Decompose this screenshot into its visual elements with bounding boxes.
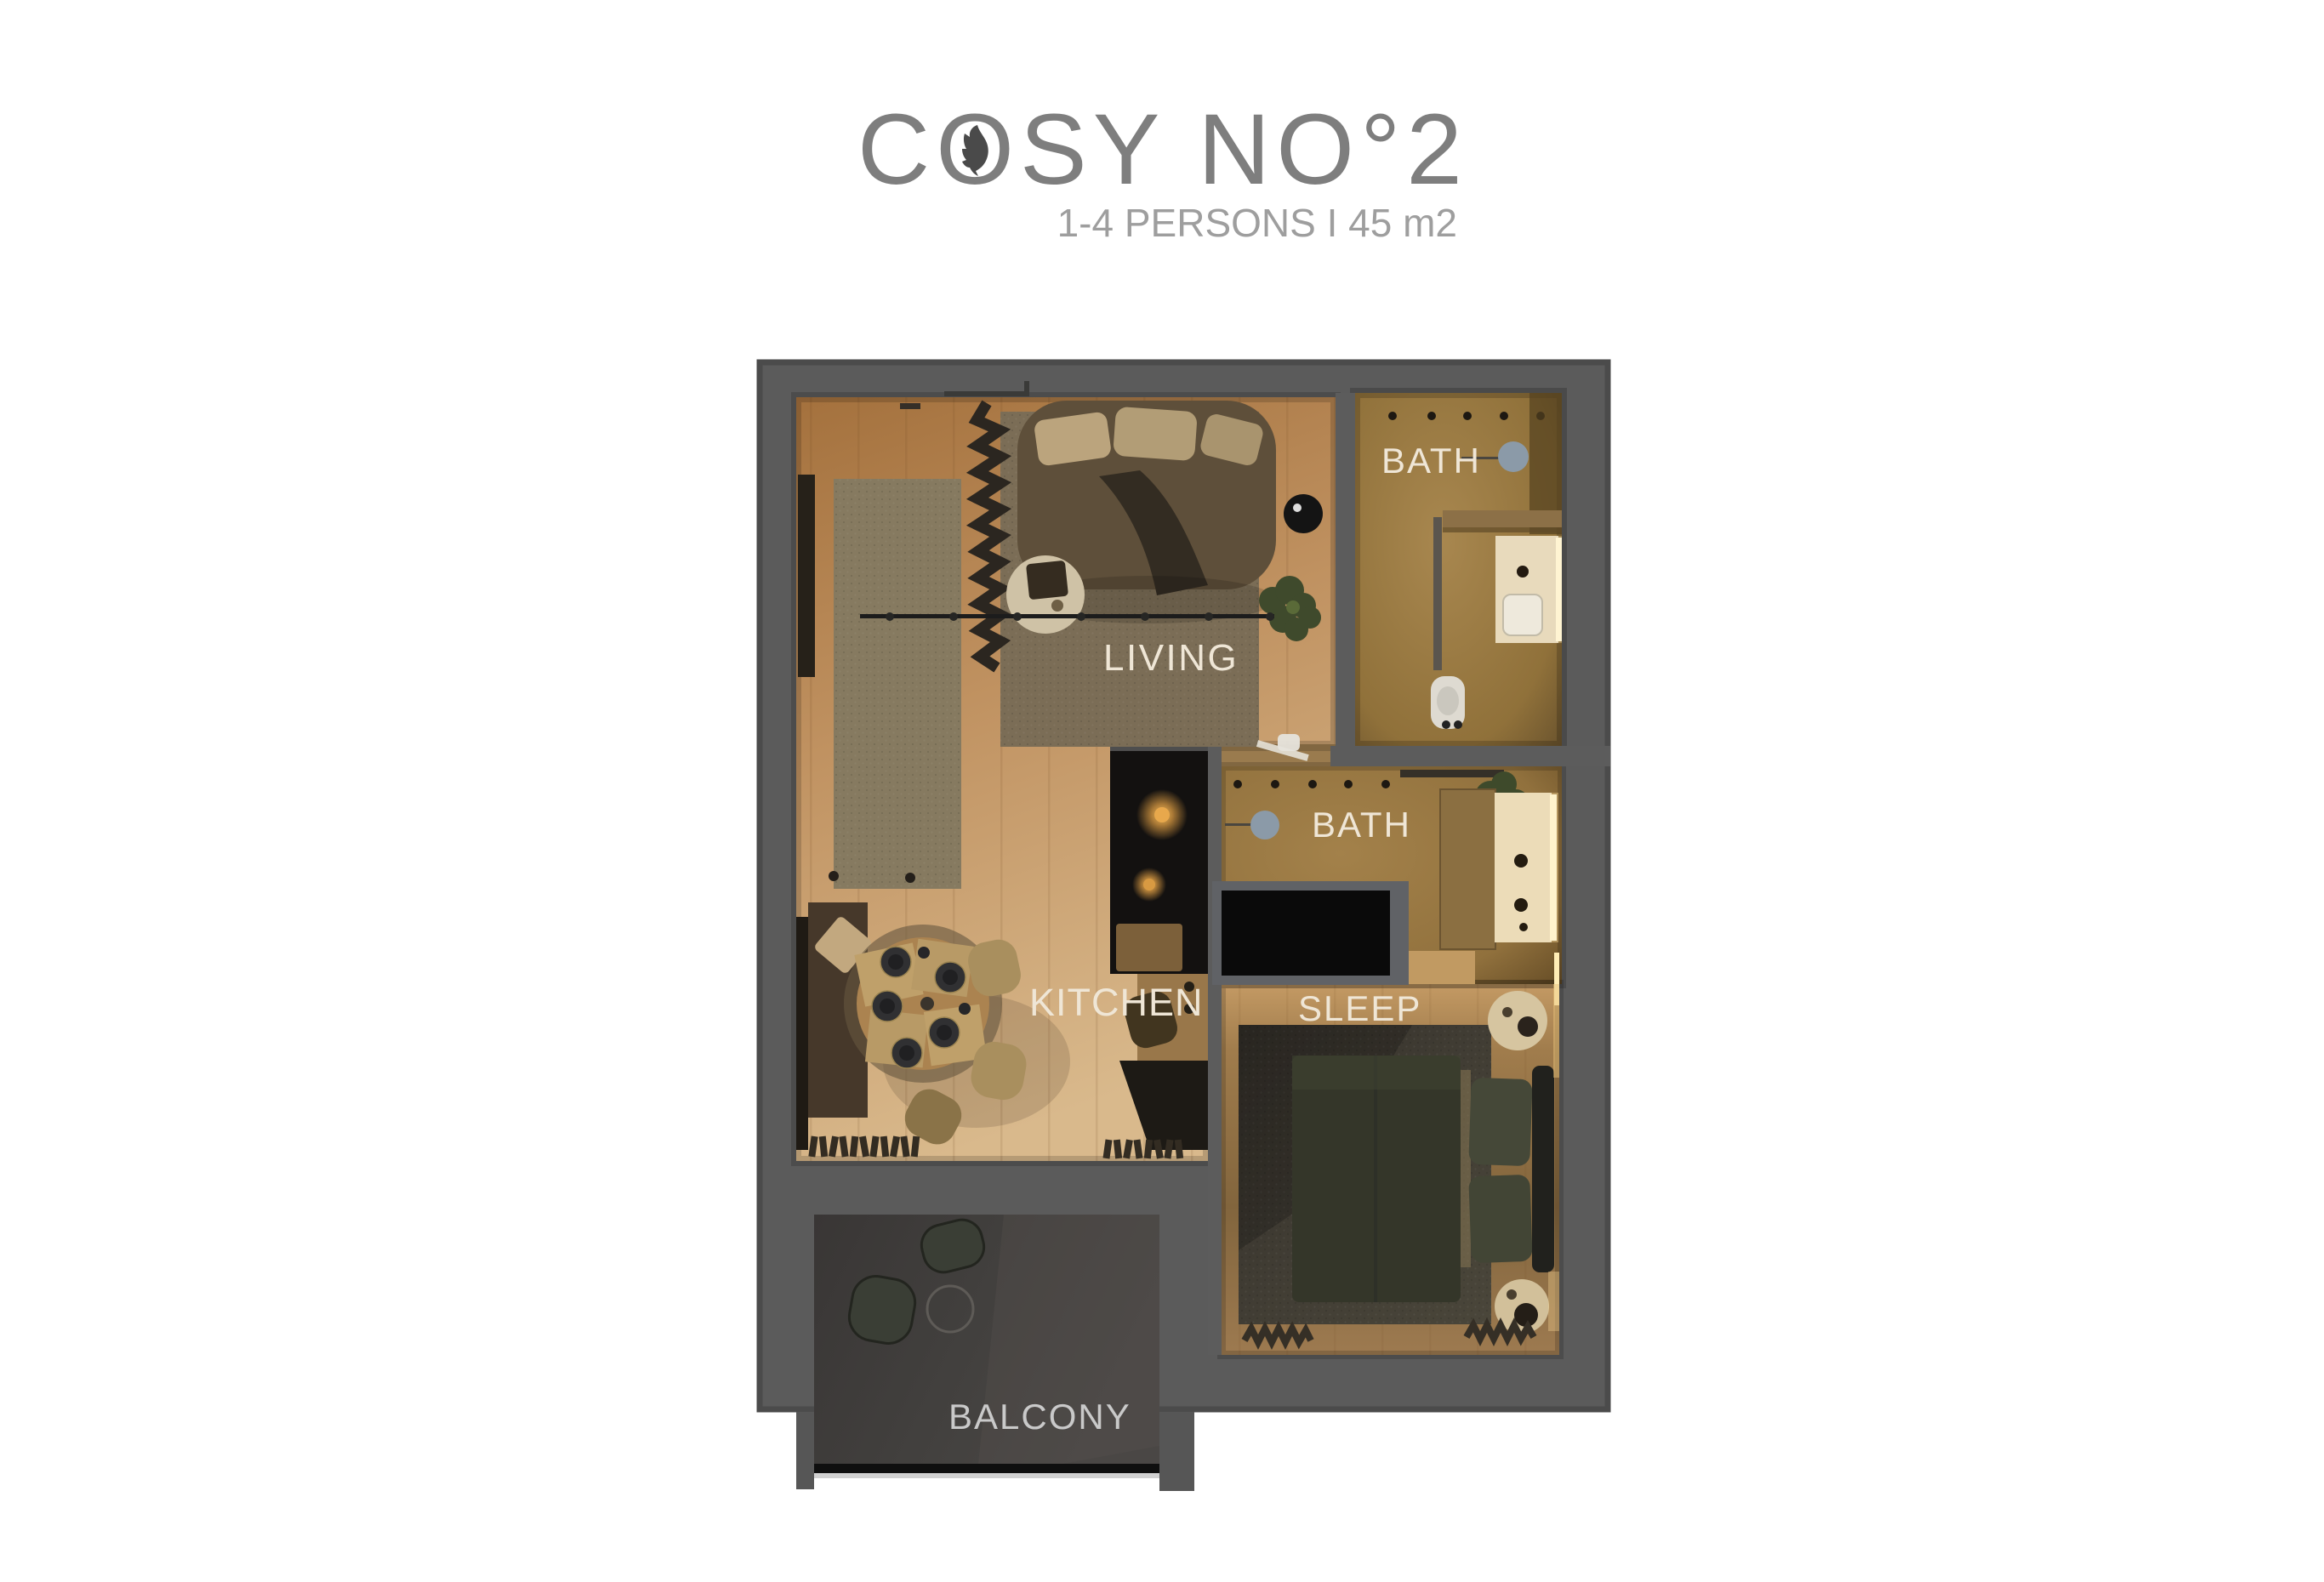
svg-text:KITCHEN: KITCHEN: [1029, 981, 1204, 1024]
svg-text:COSY NO°2: COSY NO°2: [857, 94, 1468, 206]
svg-text:LIVING: LIVING: [1103, 637, 1239, 679]
svg-text:SLEEP: SLEEP: [1298, 988, 1421, 1028]
svg-text:1-4 PERSONS I 45 m2: 1-4 PERSONS I 45 m2: [1057, 201, 1457, 245]
svg-text:BATH: BATH: [1312, 805, 1411, 845]
svg-text:BATH: BATH: [1381, 441, 1481, 481]
svg-text:BALCONY: BALCONY: [948, 1397, 1131, 1437]
